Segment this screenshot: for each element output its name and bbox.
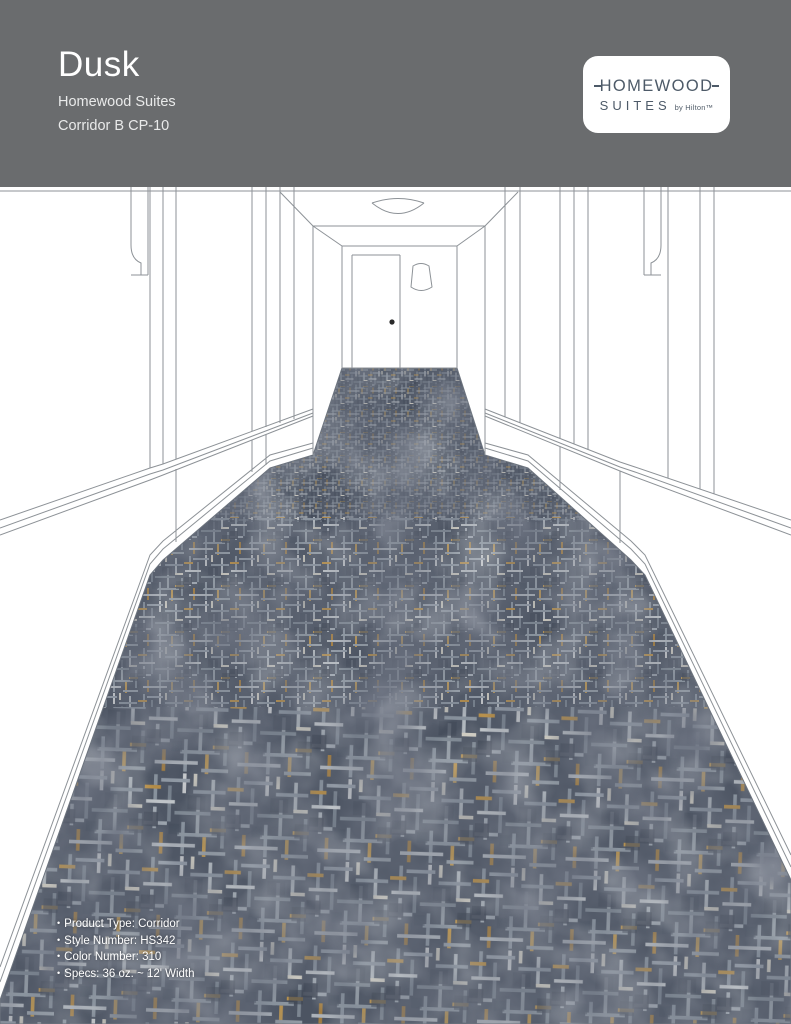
logo-wordmark: HOMEWOOD bbox=[594, 77, 720, 96]
logo-homewood-text: HOMEWOOD bbox=[600, 77, 714, 96]
logo-subline: SUITES by Hilton™ bbox=[600, 98, 714, 113]
bullet-icon: • bbox=[57, 918, 60, 928]
spec-product-type: •Product Type: Corridor bbox=[57, 916, 195, 933]
logo-right-bar bbox=[712, 85, 719, 86]
logo-by-hilton-text: by Hilton™ bbox=[675, 103, 714, 112]
corridor-rendering: •Product Type: Corridor •Style Number: H… bbox=[0, 187, 791, 1024]
spec-sheet-page: Dusk Homewood Suites Corridor B CP-10 HO… bbox=[0, 0, 791, 1024]
application-code: Corridor B CP-10 bbox=[58, 117, 176, 136]
door-knob bbox=[389, 319, 394, 324]
homewood-suites-logo: HOMEWOOD SUITES by Hilton™ bbox=[583, 56, 730, 133]
corridor-drawing bbox=[0, 187, 791, 1024]
spec-style-number: •Style Number: HS342 bbox=[57, 933, 195, 950]
bullet-icon: • bbox=[57, 951, 60, 961]
bullet-icon: • bbox=[57, 968, 60, 978]
spec-specs: •Specs: 36 oz. ~ 12' Width bbox=[57, 966, 195, 983]
logo-suites-text: SUITES bbox=[600, 98, 671, 113]
bullet-icon: • bbox=[57, 935, 60, 945]
spec-color-number: •Color Number: 310 bbox=[57, 949, 195, 966]
product-specs: •Product Type: Corridor •Style Number: H… bbox=[57, 916, 195, 982]
header-text: Dusk Homewood Suites Corridor B CP-10 bbox=[58, 47, 176, 136]
product-name: Dusk bbox=[58, 47, 176, 83]
header-band: Dusk Homewood Suites Corridor B CP-10 HO… bbox=[0, 0, 791, 187]
brand-name: Homewood Suites bbox=[58, 93, 176, 112]
